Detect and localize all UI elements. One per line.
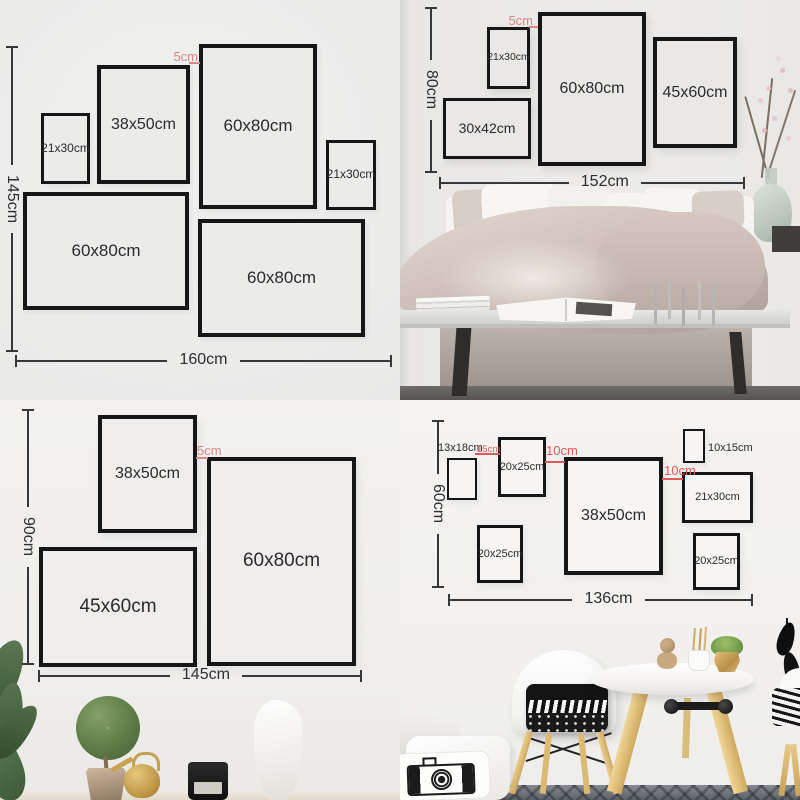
frame-13x18: [447, 458, 477, 500]
frame-45x60: 45x60cm: [653, 37, 737, 148]
frame-size-label-outside: 10x15cm: [708, 442, 753, 454]
gap-line: [189, 62, 200, 64]
frame-45x60-landscape: 45x60cm: [39, 547, 197, 667]
bedroom-photo-top-right: 21x30cm 60x80cm 45x60cm 30x42cm 5cm 80cm…: [400, 0, 800, 400]
frame-size-label: 38x50cm: [115, 465, 180, 483]
blanket-dark: [526, 684, 608, 700]
wall-photo-bottom-left: 38x50cm 60x80cm 45x60cm 5cm 90cm 145cm: [0, 400, 400, 800]
dim-line: [437, 534, 439, 586]
frame-21x30: 21x30cm: [487, 27, 530, 89]
dimension-label: 145cm: [3, 165, 21, 233]
table-hardware-bar: [672, 702, 724, 710]
diagram-top-left: 21x30cm 38x50cm 60x80cm 21x30cm 60x80cm …: [0, 0, 400, 400]
frame-size-label: 60x80cm: [243, 551, 320, 572]
frame-10x15: [683, 429, 705, 463]
frame-size-label: 21x30cm: [41, 142, 90, 155]
frame-20x25: 20x25cm: [477, 525, 523, 583]
blanket-speckled: [526, 713, 608, 732]
frame-38x50: 38x50cm: [98, 415, 197, 533]
dim-line: [40, 675, 170, 677]
frame-size-label: 45x60cm: [79, 597, 156, 618]
side-chair-cushion: [772, 688, 800, 726]
dimension-line-horizontal: 145cm: [38, 670, 362, 682]
camera-pillow: [400, 750, 491, 800]
blanket-patterned: [526, 700, 608, 713]
gallery-wall-size-guide-collage: 21x30cm 38x50cm 60x80cm 21x30cm 60x80cm …: [0, 0, 800, 800]
dimension-label: 160cm: [167, 351, 239, 369]
frame-60x80-landscape: 60x80cm: [198, 219, 365, 337]
topiary-foliage: [76, 696, 140, 760]
nightstand: [772, 226, 800, 252]
frame-38x50: 38x50cm: [564, 457, 663, 575]
gap-line: [196, 457, 208, 459]
dim-line: [437, 422, 439, 474]
gap-line: [545, 461, 565, 463]
dim-line: [17, 360, 167, 362]
dim-line: [240, 360, 390, 362]
frame-21x30-landscape: 21x30cm: [682, 472, 753, 523]
wooden-figurine-head: [660, 638, 675, 653]
dim-line: [11, 48, 13, 165]
white-vase: [254, 700, 302, 800]
dim-line: [641, 182, 743, 184]
dimension-line-vertical: 60cm: [432, 420, 444, 588]
frame-size-label: 21x30cm: [327, 168, 376, 181]
dimension-label: 80cm: [422, 60, 440, 119]
wooden-figurine-body: [657, 652, 677, 669]
frame-21x30: 21x30cm: [326, 140, 376, 210]
dim-line: [430, 120, 432, 171]
gold-geometric-pot: [714, 652, 740, 672]
dim-line: [430, 9, 432, 60]
dimension-label: 90cm: [19, 507, 37, 566]
book-photo: [576, 302, 613, 316]
dim-line: [27, 411, 29, 507]
dimension-line-vertical: 145cm: [6, 46, 18, 352]
frame-size-label: 21x30cm: [487, 52, 530, 64]
frame-20x25: 20x25cm: [693, 533, 740, 590]
frame-60x80: 60x80cm: [207, 457, 356, 666]
black-jar: [188, 762, 228, 800]
table-bolt: [664, 699, 679, 714]
frame-size-label: 20x25cm: [500, 461, 545, 473]
dim-line: [441, 182, 569, 184]
frame-size-label: 21x30cm: [695, 491, 740, 503]
frame-size-label: 30x42cm: [459, 121, 516, 136]
dimension-line-horizontal: 152cm: [439, 177, 745, 189]
dim-line: [11, 233, 13, 350]
jar-label: [194, 782, 222, 794]
frame-size-label: 20x25cm: [478, 548, 523, 560]
watering-can-body: [124, 764, 160, 798]
gap-line: [662, 478, 683, 480]
frame-size-label: 60x80cm: [560, 80, 625, 98]
dim-line: [27, 567, 29, 663]
frame-21x30: 21x30cm: [41, 113, 90, 184]
candle-holders: [654, 286, 657, 324]
dining-photo-bottom-right: 20x25cm 38x50cm 21x30cm 20x25cm 20x25cm …: [400, 400, 800, 800]
terracotta-pot: [86, 768, 126, 800]
dimension-line-vertical: 90cm: [22, 409, 34, 665]
dim-line: [242, 675, 360, 677]
bench-edge: [400, 324, 790, 328]
frame-60x80: 60x80cm: [538, 12, 646, 166]
dim-line: [450, 599, 572, 601]
frame-20x25: 20x25cm: [498, 437, 546, 497]
dim-line: [645, 599, 752, 601]
dimension-label: 145cm: [170, 666, 242, 684]
frame-60x80: 60x80cm: [199, 44, 317, 209]
dimension-label: 60cm: [429, 474, 447, 533]
frame-size-label: 38x50cm: [581, 507, 646, 525]
dimension-line-horizontal: 136cm: [448, 594, 753, 606]
frame-60x80-landscape: 60x80cm: [23, 192, 189, 310]
gap-line: [529, 26, 538, 28]
dimension-line-horizontal: 160cm: [15, 355, 392, 367]
frame-30x42-landscape: 30x42cm: [443, 98, 531, 159]
frame-size-label: 60x80cm: [224, 117, 293, 136]
gap-line: [475, 453, 500, 455]
white-cup: [688, 650, 710, 671]
frame-size-label: 60x80cm: [72, 242, 141, 261]
dimension-label: 152cm: [569, 173, 641, 191]
blossoms: [766, 86, 771, 91]
dimension-line-vertical: 80cm: [425, 7, 437, 173]
blanket-stack: [526, 684, 608, 732]
gap-annotation-5cm: 5cm: [197, 443, 222, 458]
book-spine: [565, 299, 567, 321]
frame-size-label: 60x80cm: [247, 269, 316, 288]
frame-size-label: 38x50cm: [111, 116, 176, 134]
gap-annotation-10cm: 10cm: [546, 443, 578, 458]
frame-size-label: 20x25cm: [694, 555, 739, 567]
book-stack: [416, 296, 490, 313]
table-bolt: [718, 699, 733, 714]
gap-annotation-10cm: 10cm: [664, 463, 696, 478]
frame-38x50: 38x50cm: [97, 65, 190, 184]
dimension-label: 136cm: [572, 590, 644, 608]
frame-size-label: 45x60cm: [663, 84, 728, 102]
